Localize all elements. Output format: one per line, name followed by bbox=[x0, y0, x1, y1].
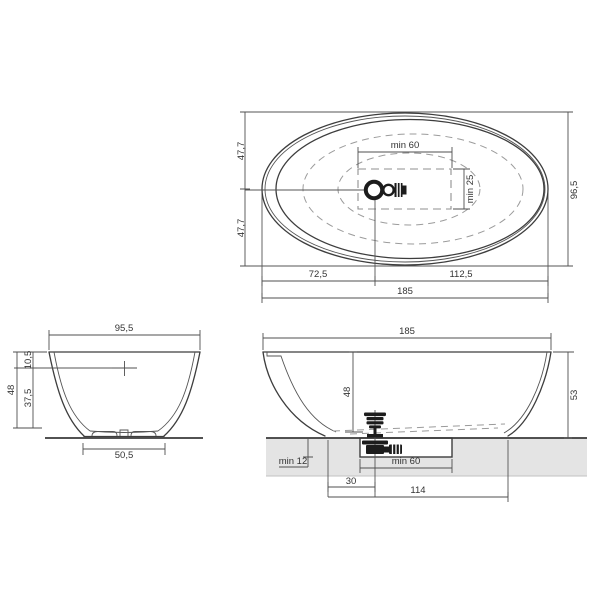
tub-wall-left-outer-side bbox=[263, 352, 325, 436]
technical-drawing-bathtub: 47,7 47,7 96,5 min 60 min 25 72,5 112,5 … bbox=[0, 0, 600, 600]
tub-drain-notch bbox=[120, 430, 128, 436]
drain-body bbox=[395, 183, 403, 197]
label-clearance-length: min 60 bbox=[391, 140, 420, 151]
tub-wall-right-outer bbox=[164, 352, 200, 436]
drain-flange bbox=[366, 182, 382, 198]
drain-cap bbox=[403, 186, 407, 195]
dim-left-halves bbox=[240, 112, 250, 266]
label-drain-to-right: 112,5 bbox=[449, 269, 472, 280]
label-lower-depth: 37,5 bbox=[23, 389, 34, 408]
drain-ring bbox=[383, 185, 393, 195]
label-half-width-lower: 47,7 bbox=[236, 219, 247, 238]
label-overall-length-side: 185 bbox=[399, 326, 415, 337]
label-recess-length: min 60 bbox=[392, 456, 421, 467]
label-inner-depth-side: 48 bbox=[342, 387, 353, 398]
label-base-width-front: 50,5 bbox=[115, 450, 134, 461]
drain-fitting-top-icon bbox=[366, 182, 407, 198]
label-drain-offset: 30 bbox=[346, 476, 357, 487]
dim-bottom-split bbox=[262, 276, 548, 286]
label-drain-from-left: 72,5 bbox=[309, 269, 328, 280]
tub-bottom-contour-dashed bbox=[338, 153, 480, 225]
top-view: 47,7 47,7 96,5 min 60 min 25 72,5 112,5 … bbox=[236, 112, 580, 303]
tub-wall-left-outer bbox=[49, 352, 84, 436]
front-view: 95,5 10,5 37,5 48 50,5 bbox=[6, 323, 203, 461]
label-inner-depth-front: 48 bbox=[6, 385, 17, 396]
label-half-width-upper: 47,7 bbox=[236, 142, 247, 161]
drawing-svg: 47,7 47,7 96,5 min 60 min 25 72,5 112,5 … bbox=[0, 0, 600, 600]
label-base-length: 114 bbox=[410, 485, 425, 496]
crosshair-marker-icon bbox=[112, 361, 137, 376]
label-overflow-depth: 10,5 bbox=[23, 351, 34, 370]
label-overall-length-top: 185 bbox=[397, 286, 413, 297]
tub-outline-side-view bbox=[263, 352, 551, 436]
label-clearance-width: min 25 bbox=[465, 175, 476, 204]
label-overall-height: 53 bbox=[569, 390, 580, 401]
tub-wall-right-inner-side bbox=[504, 352, 547, 433]
label-rim-width: 95,5 bbox=[115, 323, 134, 334]
tub-interior-bottom-dashed bbox=[333, 424, 505, 434]
label-overall-width: 96,5 bbox=[569, 181, 580, 200]
label-recess-depth: min 12 bbox=[279, 456, 308, 467]
side-view: 185 48 53 min 12 min 60 30 114 bbox=[263, 326, 587, 502]
